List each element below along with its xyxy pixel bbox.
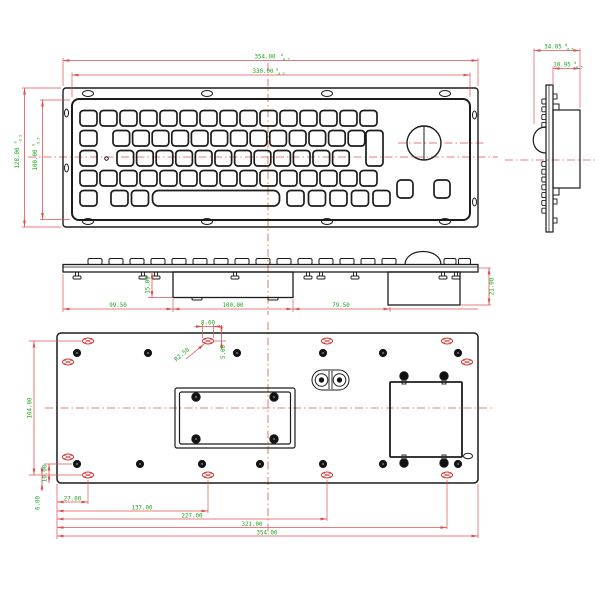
dim-arrow xyxy=(472,59,479,62)
key xyxy=(280,111,297,127)
side-key-profile xyxy=(542,185,546,190)
screw-hole-center xyxy=(382,352,384,354)
dim-profile-housing-height: 21.00 xyxy=(490,277,496,295)
side-flange xyxy=(553,104,559,110)
frame-mount-hole xyxy=(440,91,451,97)
dim-arrow xyxy=(23,88,26,95)
key xyxy=(360,111,377,127)
frame-mount-hole xyxy=(202,91,213,97)
key xyxy=(373,191,390,207)
profile-stud-head xyxy=(73,276,81,279)
key xyxy=(309,131,326,147)
screw-hole-center xyxy=(273,438,275,440)
dim-arrow xyxy=(441,526,448,529)
side-key-profile xyxy=(542,177,546,182)
profile-key xyxy=(340,259,354,265)
housing-screw xyxy=(440,372,448,380)
dim-tol-lower: -0.5 xyxy=(281,58,290,62)
key xyxy=(330,191,347,207)
dim-back-y6: 6.00 xyxy=(36,496,42,510)
profile-key xyxy=(151,259,165,265)
dimension-lines xyxy=(22,49,580,540)
profile-stud-head xyxy=(231,276,239,279)
profile-key xyxy=(298,259,312,265)
housing-screw xyxy=(400,459,408,467)
screw-hole-center xyxy=(195,396,197,398)
profile-key xyxy=(235,259,249,265)
screw-hole-center xyxy=(139,463,141,465)
key xyxy=(176,151,193,167)
dim-arrow xyxy=(41,483,44,490)
dim-arrow xyxy=(72,74,79,77)
key xyxy=(80,131,97,147)
profile-stud-head xyxy=(351,276,359,279)
key xyxy=(80,111,97,127)
dim-profile-box-height: 15.00 xyxy=(146,276,152,294)
dim-arrow xyxy=(23,221,26,228)
side-key-profile xyxy=(542,99,546,104)
dim-back-x354: 354.00 xyxy=(257,531,278,537)
screw-hole-center xyxy=(457,352,459,354)
frame-side-notch xyxy=(473,198,477,206)
dim-side-depth-total: 34.05 xyxy=(544,45,562,51)
screw-hole-center xyxy=(195,438,197,440)
dim-top-height-inner: 100.00 xyxy=(33,149,39,170)
connector-pin xyxy=(337,378,341,382)
side-rear-housing xyxy=(553,110,580,188)
key xyxy=(80,151,97,167)
screw-hole-center xyxy=(322,463,324,465)
frame-side-notch xyxy=(65,109,69,117)
dim-arrow xyxy=(82,501,89,504)
dim-arrow xyxy=(33,341,36,348)
dim-tol-upper: 0 xyxy=(276,68,278,72)
key xyxy=(195,151,212,167)
key xyxy=(320,171,337,187)
dim-arrow xyxy=(41,100,44,107)
connector-pin xyxy=(319,378,323,382)
housing-screw xyxy=(440,459,448,467)
profile-plate xyxy=(63,265,478,273)
dim-back-slot-offset: 5.00 xyxy=(221,345,227,359)
key xyxy=(220,111,237,127)
key xyxy=(235,151,252,167)
side-key-profile xyxy=(542,169,546,174)
key xyxy=(156,151,173,167)
key xyxy=(117,151,134,167)
key xyxy=(140,111,157,127)
dim-side-depth-rear: 10.95 xyxy=(553,63,571,69)
profile-stud-head xyxy=(317,276,325,279)
key xyxy=(133,131,150,147)
screw-hole-center xyxy=(147,352,149,354)
profile-stud-head xyxy=(439,276,447,279)
dim-back-slot-length: 8.00 xyxy=(201,321,215,327)
key xyxy=(160,111,177,127)
dim-arrow xyxy=(57,526,64,529)
key xyxy=(200,111,217,127)
dim-top-width-inner: 330.00 xyxy=(253,69,274,75)
key xyxy=(80,171,97,187)
key xyxy=(231,131,248,147)
frame-side-notch xyxy=(65,164,69,172)
profile-key xyxy=(459,259,471,265)
key xyxy=(333,151,350,167)
key-enter xyxy=(366,131,383,167)
cable-hole xyxy=(464,453,473,459)
profile-key xyxy=(193,259,207,265)
dim-back-x27: 27.00 xyxy=(64,497,82,503)
dim-arrow xyxy=(287,308,294,311)
housing-screw xyxy=(400,372,408,380)
profile-trackball-dome xyxy=(405,252,441,266)
key xyxy=(340,171,357,187)
screw-hole-center xyxy=(201,463,203,465)
key xyxy=(80,191,97,207)
profile-stud-head xyxy=(304,276,312,279)
screw-hole-center xyxy=(76,463,78,465)
dim-arrow xyxy=(63,59,70,62)
dim-arrow xyxy=(167,308,174,311)
key xyxy=(120,111,137,127)
dim-labels: 354.00 0 -0.5 330.00 0 -0.5 128.00 0 -0.… xyxy=(14,43,583,537)
profile-key xyxy=(214,259,228,265)
key xyxy=(352,191,369,207)
side-flange xyxy=(553,188,559,195)
key xyxy=(250,131,267,147)
key xyxy=(132,191,149,207)
dim-profile-center: 100.00 xyxy=(223,303,244,309)
key xyxy=(348,131,365,147)
profile-stud-head xyxy=(452,276,460,279)
dim-tol-lower: -0.5 xyxy=(276,72,285,76)
key xyxy=(140,171,157,187)
dim-arrow xyxy=(321,518,328,521)
side-key-profile xyxy=(542,208,546,213)
top-view xyxy=(63,88,478,227)
dim-back-slot-radius: R2.50 xyxy=(174,347,192,363)
key xyxy=(211,131,228,147)
screw-hole-center xyxy=(273,396,275,398)
profile-key xyxy=(172,259,186,265)
dim-arrow xyxy=(57,535,64,538)
key xyxy=(289,131,306,147)
profile-key xyxy=(319,259,333,265)
frame-mount-hole xyxy=(83,91,94,97)
dim-back-y10: 10.00 xyxy=(43,464,49,482)
dim-arrow xyxy=(488,299,491,306)
key xyxy=(313,151,330,167)
dim-profile-right: 79.50 xyxy=(332,303,350,309)
connector-outline xyxy=(312,370,349,390)
screw-hole-center xyxy=(457,463,459,465)
dim-arrow xyxy=(57,510,64,513)
dim-tol-lower: -0.5 xyxy=(19,135,23,144)
profile-key xyxy=(109,259,123,265)
key xyxy=(329,131,346,147)
dim-arrow xyxy=(220,327,223,334)
side-key-profile xyxy=(542,161,546,166)
dim-tol-lower: -0.5 xyxy=(37,137,41,146)
frame-mount-hole xyxy=(322,91,333,97)
side-key-profile xyxy=(542,200,546,205)
key xyxy=(120,171,137,187)
profile-key xyxy=(277,259,291,265)
profile-foot xyxy=(192,298,202,301)
dim-profile-left: 99.50 xyxy=(109,303,127,309)
key xyxy=(260,171,277,187)
dim-arrow xyxy=(202,510,209,513)
side-key-profile xyxy=(542,115,546,120)
key xyxy=(111,191,128,207)
dim-back-x137: 137.00 xyxy=(132,506,153,512)
side-view xyxy=(533,85,580,232)
key xyxy=(137,151,154,167)
key xyxy=(340,111,357,127)
dim-top-height-outer: 128.00 xyxy=(15,147,21,168)
key xyxy=(172,131,189,147)
key xyxy=(152,131,169,147)
side-panel-plate xyxy=(546,85,553,232)
mouse-button-right xyxy=(434,180,450,198)
screw-hole-center xyxy=(236,352,238,354)
key xyxy=(270,131,287,147)
dim-arrow xyxy=(33,469,36,476)
frame-side-notch xyxy=(473,111,477,119)
key xyxy=(300,171,317,187)
profile-foot xyxy=(268,298,278,301)
dim-tol-lower: -0.5 xyxy=(565,48,574,52)
profile-key xyxy=(88,259,102,265)
dim-tol-lower: -0.5 xyxy=(574,66,583,70)
profile-right-housing xyxy=(388,272,460,305)
cad-drawing: 354.00 0 -0.5 330.00 0 -0.5 128.00 0 -0.… xyxy=(0,0,600,600)
dim-tol-upper: 0 xyxy=(32,144,36,146)
screw-hole-center xyxy=(322,352,324,354)
key xyxy=(153,191,280,207)
dim-arrow xyxy=(472,535,479,538)
dim-arrow xyxy=(41,213,44,220)
key xyxy=(360,171,377,187)
key xyxy=(100,111,117,127)
dim-tol-upper: 0 xyxy=(565,43,567,47)
dim-arrow xyxy=(173,308,180,311)
key xyxy=(191,131,208,147)
dim-tol-upper: 0 xyxy=(281,53,283,57)
screw-hole-center xyxy=(382,463,384,465)
side-key-profile xyxy=(542,193,546,198)
key xyxy=(180,111,197,127)
key xyxy=(180,171,197,187)
key xyxy=(240,171,257,187)
dim-arrow xyxy=(63,308,70,311)
key xyxy=(293,151,310,167)
dim-back-x227: 227.00 xyxy=(182,514,203,520)
side-key-profile xyxy=(542,107,546,112)
profile-view xyxy=(63,252,478,306)
dim-arrow xyxy=(488,268,491,275)
dim-tol-upper: 0 xyxy=(14,141,18,143)
profile-key xyxy=(444,259,456,265)
key xyxy=(300,111,317,127)
dim-arrow xyxy=(574,49,581,52)
dim-arrow xyxy=(293,308,300,311)
key xyxy=(260,111,277,127)
key xyxy=(287,191,304,207)
key xyxy=(100,171,117,187)
dim-tol-upper: 0 xyxy=(574,61,576,65)
key xyxy=(240,111,257,127)
key xyxy=(220,171,237,187)
profile-key xyxy=(382,259,396,265)
profile-stud-head xyxy=(152,276,160,279)
profile-key xyxy=(130,259,144,265)
screw-hole-center xyxy=(259,463,261,465)
dim-arrow xyxy=(464,74,471,77)
screw-hole-center xyxy=(76,352,78,354)
dim-top-width-outer: 354.00 xyxy=(255,55,276,61)
key xyxy=(200,171,217,187)
dim-back-y104: 104.00 xyxy=(28,397,34,418)
profile-key xyxy=(361,259,375,265)
trackball-housing xyxy=(390,382,462,457)
key xyxy=(160,171,177,187)
key xyxy=(215,151,232,167)
key xyxy=(320,111,337,127)
dim-arrow xyxy=(57,501,64,504)
key xyxy=(280,171,297,187)
key xyxy=(309,191,326,207)
dim-arrow xyxy=(57,518,64,521)
side-trackball-dome xyxy=(533,127,546,153)
key xyxy=(113,131,130,147)
dim-arrow xyxy=(384,308,391,311)
key xyxy=(274,151,291,167)
mouse-button-left xyxy=(397,180,413,198)
dim-arrow xyxy=(534,49,541,52)
dim-back-x321: 321.00 xyxy=(242,522,263,528)
